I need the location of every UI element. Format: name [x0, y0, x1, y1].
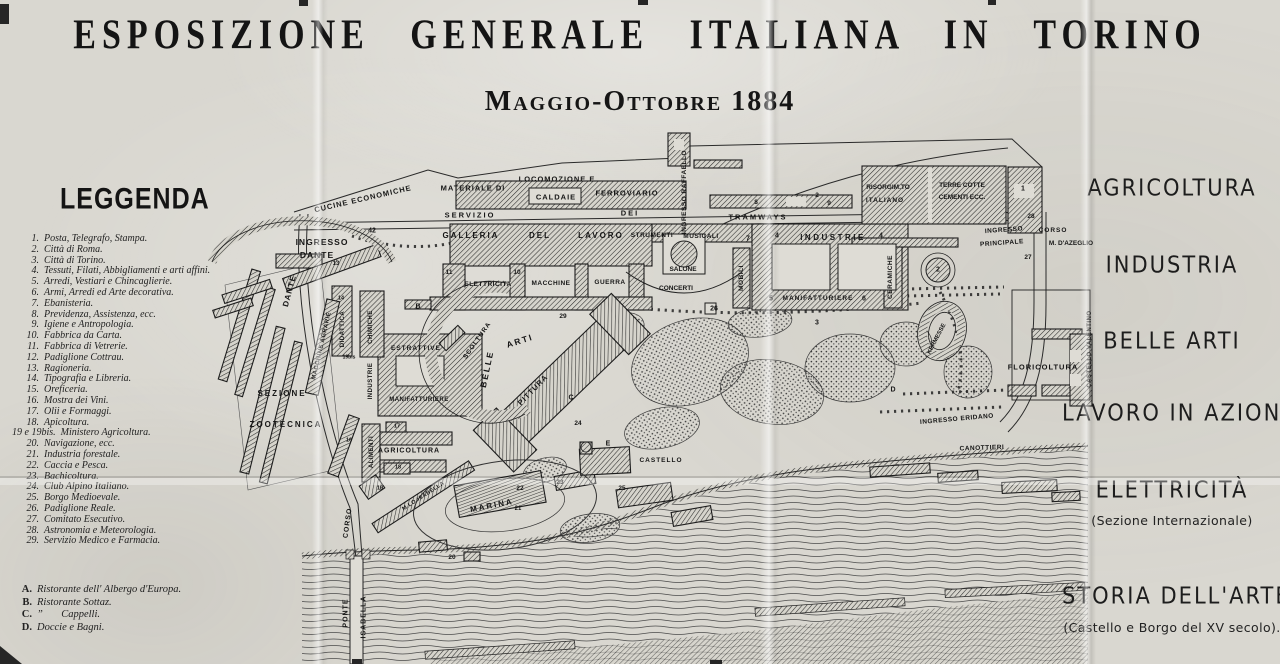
- section-belle-arti: BELLE ARTI: [1062, 327, 1280, 354]
- legend-item-number: 4.: [12, 266, 44, 277]
- legend-heading: LEGGENDA: [60, 182, 210, 217]
- legend-item: C.” Cappelli.: [12, 609, 192, 622]
- legend-item-number: 5.: [12, 277, 44, 288]
- legend-item-number: B.: [12, 597, 37, 610]
- page-subtitle: Maggio-Ottobre 1884: [0, 86, 1280, 118]
- section-elettricita: ELETTRICITÀ: [1062, 476, 1280, 503]
- legend-item: 2.Città di Roma.: [12, 245, 228, 256]
- legend-list: 1.Posta, Telegrafo, Stampa.2.Città di Ro…: [12, 234, 228, 547]
- legend-item-number: 7.: [12, 299, 44, 310]
- legend-item-text: Doccie e Bagni.: [37, 622, 192, 635]
- legend-item-number: 12.: [12, 353, 44, 364]
- legend-item: A.Ristorante dell' Albergo d'Europa.: [12, 584, 192, 597]
- legend-item-text: Caccia e Pesca.: [44, 461, 228, 472]
- legend-item-number: 29.: [12, 536, 44, 547]
- legend-item-text: Comitato Esecutivo.: [44, 515, 228, 526]
- legend-item: 7.Ebanisteria.: [12, 299, 228, 310]
- section-agricoltura: AGRICOLTURA: [1062, 174, 1280, 201]
- legend-item: D.Doccie e Bagni.: [12, 622, 192, 635]
- section-elettricita-sub: (Sezione Internazionale): [1062, 513, 1280, 528]
- section-lavoro-in-azione: LAVORO IN AZIONE: [1062, 399, 1280, 426]
- legend-item-text: Ristorante Sottaz.: [37, 597, 192, 610]
- legend-item-number: 2.: [12, 245, 44, 256]
- legend-item-number: A.: [12, 584, 37, 597]
- legend-item-text: Città di Roma.: [44, 245, 228, 256]
- legend-item-number: 17.: [12, 407, 44, 418]
- legend-item-text: Padiglione Cottrau.: [44, 353, 228, 364]
- legend-item-text: Ristorante dell' Albergo d'Europa.: [37, 584, 192, 597]
- legend-item: 22.Caccia e Pesca.: [12, 461, 228, 472]
- legend-item: 29.Servizio Medico e Farmacia.: [12, 536, 228, 547]
- legend-item: 12.Padiglione Cottrau.: [12, 353, 228, 364]
- legend-item-number: 1.: [12, 234, 44, 245]
- section-industria: INDUSTRIA: [1062, 251, 1280, 278]
- legend-item: 17.Olii e Formaggi.: [12, 407, 228, 418]
- legend-letter-list: A.Ristorante dell' Albergo d'Europa.B.Ri…: [12, 584, 192, 634]
- legend-item-text: Olii e Formaggi.: [44, 407, 228, 418]
- legend-item-number: C.: [12, 609, 37, 622]
- legend-item-number: 27.: [12, 515, 44, 526]
- legend-item-number: 22.: [12, 461, 44, 472]
- legend-item-number: D.: [12, 622, 37, 635]
- legend-item: 27.Comitato Esecutivo.: [12, 515, 228, 526]
- legend-item-number: 3.: [12, 256, 44, 267]
- legend-item-text: ” Cappelli.: [37, 609, 192, 622]
- legend-item-number: 6.: [12, 288, 44, 299]
- legend-item-text: Servizio Medico e Farmacia.: [44, 536, 228, 547]
- page-title: ESPOSIZIONE GENERALE ITALIANA IN TORINO: [0, 12, 1280, 60]
- section-storia-dellarte-sub: (Castello e Borgo del XV secolo).: [1062, 620, 1280, 635]
- section-storia-dellarte: STORIA DELL'ARTE: [1062, 582, 1280, 609]
- legend-item-number: 8.: [12, 310, 44, 321]
- legend-item: B.Ristorante Sottaz.: [12, 597, 192, 610]
- legend-item-text: Ebanisteria.: [44, 299, 228, 310]
